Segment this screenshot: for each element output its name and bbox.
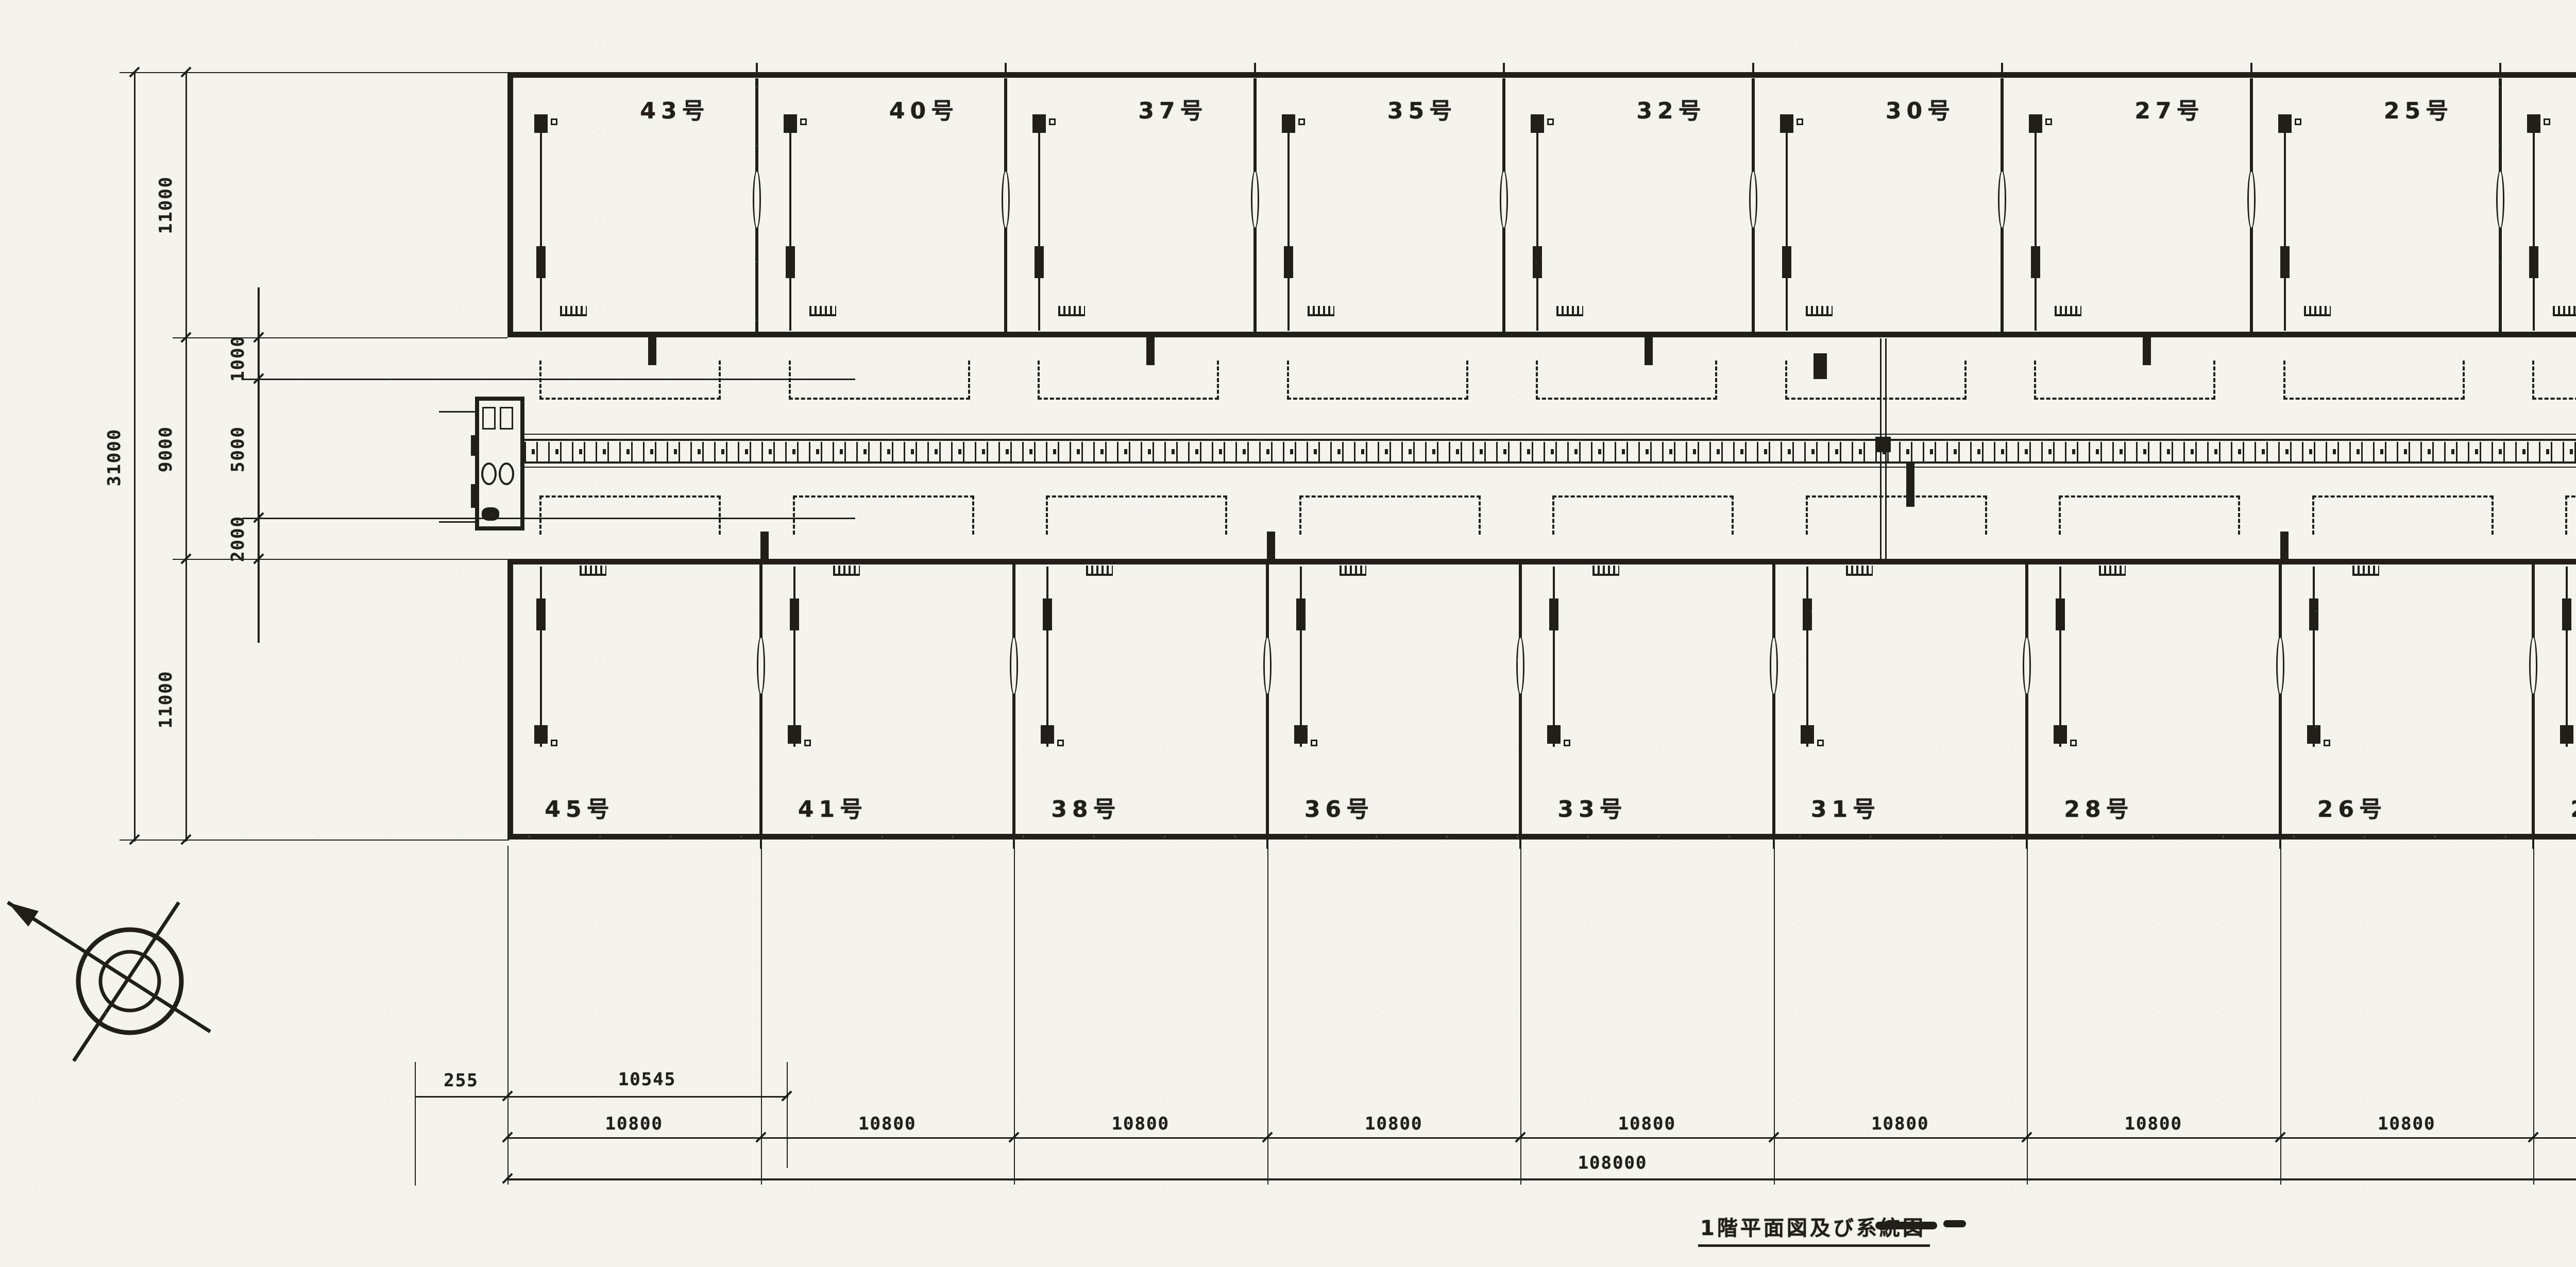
wall-tick	[2250, 63, 2252, 72]
meter-valve-symbol	[1797, 118, 1803, 125]
service-pipe-line	[2533, 132, 2535, 331]
door-blob	[471, 484, 477, 508]
corridor-wall-line	[524, 439, 2576, 441]
vent-hatch-mark	[1846, 566, 1873, 576]
parking-bay-dashed	[2283, 361, 2465, 400]
pipe-fitting-symbol	[2280, 246, 2290, 278]
pipe-fitting-symbol	[1782, 246, 1791, 278]
gas-meter-symbol	[784, 114, 797, 133]
gas-meter-symbol	[2054, 725, 2067, 744]
party-wall-line	[1772, 564, 1775, 834]
pipe-fitting-symbol	[2056, 598, 2065, 630]
meter-valve-symbol	[1817, 740, 1824, 746]
wall-pilaster-symbol	[2496, 170, 2504, 229]
parking-bay-dashed	[789, 361, 970, 400]
party-wall-line	[1519, 564, 1522, 834]
grid-extension-line	[1267, 846, 1268, 1185]
extension-line	[173, 337, 507, 338]
dim-line-inner	[258, 287, 260, 643]
dim-label-2000: 2000	[228, 482, 248, 595]
unit-number-label: 33号	[1536, 794, 1649, 820]
unit-number-label: 25号	[2362, 96, 2476, 122]
wall-pilaster-symbol	[2247, 170, 2256, 229]
dim-label-11000: 11000	[156, 643, 176, 756]
parking-bay-dashed	[1046, 495, 1227, 535]
unit-number-label: 28号	[2042, 794, 2156, 820]
parking-bay-dashed	[1806, 495, 1987, 535]
service-pipe-line	[2284, 132, 2286, 331]
dim-label-10800: 10800	[578, 1114, 691, 1134]
party-wall-line	[1266, 564, 1269, 834]
meter-valve-symbol	[551, 740, 557, 746]
party-wall-line	[2532, 564, 2535, 834]
downspout-stub	[760, 532, 769, 559]
service-stub-line	[439, 411, 475, 413]
meter-valve-symbol	[551, 118, 557, 125]
service-pipe-line	[1553, 567, 1555, 747]
gas-meter-symbol	[534, 725, 548, 744]
extension-line	[120, 840, 509, 841]
grid-extension-line	[1520, 846, 1521, 1185]
corridor-wall-line	[524, 461, 2576, 464]
gas-meter-symbol	[534, 114, 548, 133]
grid-extension-line	[507, 846, 509, 1185]
dim-label-10800: 10800	[1337, 1114, 1450, 1134]
wall-pilaster-symbol	[2023, 636, 2031, 695]
parking-bay-dashed	[2532, 361, 2576, 400]
vent-hatch-mark	[1592, 566, 1619, 576]
vent-hatch-mark	[2099, 566, 2126, 576]
parking-bay-dashed	[793, 495, 974, 535]
service-pipe-line	[789, 132, 791, 331]
gas-meter-symbol	[2029, 114, 2042, 133]
gas-meter-symbol	[2527, 114, 2540, 133]
dim-label-10800: 10800	[2350, 1114, 2463, 1134]
gas-meter-symbol	[1780, 114, 1793, 133]
pipe-fitting-symbol	[536, 246, 546, 278]
pipe-fitting-symbol	[536, 598, 546, 630]
parking-bay-dashed	[2034, 361, 2215, 400]
meter-valve-symbol	[804, 740, 811, 746]
meter-valve-symbol	[1298, 118, 1305, 125]
unit-number-label: 27号	[2113, 96, 2226, 122]
extension-line	[242, 379, 855, 380]
pipe-fitting-symbol	[1296, 598, 1306, 630]
gas-meter-symbol	[1801, 725, 1814, 744]
wall-pilaster-symbol	[1770, 636, 1778, 695]
service-pipe-line	[2313, 567, 2315, 747]
service-pipe-line	[1046, 567, 1048, 747]
gas-meter-symbol	[2278, 114, 2292, 133]
toilet-fixture	[481, 463, 497, 485]
service-pipe-line	[2035, 132, 2037, 331]
pipe-fitting-symbol	[1035, 246, 1044, 278]
pipe-fitting-symbol	[2309, 598, 2318, 630]
north-arrow-icon	[0, 834, 258, 1123]
wall-pilaster-symbol	[1263, 636, 1272, 695]
wall-pilaster-symbol	[1998, 170, 2006, 229]
wall-tick	[756, 63, 758, 72]
meter-valve-symbol	[800, 118, 807, 125]
pipe-fitting-symbol	[2562, 598, 2571, 630]
unit-number-label: 37号	[1116, 96, 1230, 122]
gas-meter-symbol	[1547, 725, 1561, 744]
wall-tick	[1752, 63, 1754, 72]
vent-hatch-mark	[1340, 566, 1366, 576]
extension-line	[173, 559, 507, 560]
grid-extension-line	[1774, 846, 1775, 1185]
pipe-fitting-symbol	[2529, 246, 2538, 278]
wall-tick	[1503, 63, 1505, 72]
wall-tick	[1005, 63, 1007, 72]
wall-tick	[2499, 63, 2501, 72]
scale-note-smudge	[1875, 1222, 1937, 1229]
vent-hatch-mark	[560, 306, 587, 316]
unit-number-label: 30号	[1864, 96, 1977, 122]
corridor-edge-line	[524, 467, 2576, 468]
parking-bay-dashed	[1038, 361, 1219, 400]
meter-valve-symbol	[2295, 118, 2301, 125]
fixture-stall	[500, 407, 513, 430]
vent-hatch-mark	[1086, 566, 1113, 576]
service-pipe-line	[1287, 132, 1290, 331]
dim-label-10800: 10800	[2097, 1114, 2210, 1134]
meter-valve-symbol	[2324, 740, 2330, 746]
toilet-fixture	[499, 463, 514, 485]
dim-label-10800: 10800	[1843, 1114, 1957, 1134]
meter-valve-symbol	[2544, 118, 2550, 125]
service-pipe-line	[2566, 567, 2568, 747]
vent-hatch-mark	[809, 306, 836, 316]
grid-extension-line	[2533, 846, 2534, 1185]
extension-line	[242, 518, 855, 519]
wall-pilaster-symbol	[1010, 636, 1018, 695]
downspout-stub	[1146, 337, 1155, 365]
parking-bay-dashed	[2059, 495, 2240, 535]
parking-bay-dashed	[539, 495, 721, 535]
meter-valve-symbol	[2070, 740, 2077, 746]
pipe-fitting-symbol	[2031, 246, 2040, 278]
parking-bay-dashed	[2312, 495, 2494, 535]
party-wall-line	[2025, 564, 2028, 834]
vent-hatch-mark	[2352, 566, 2379, 576]
scale-note-smudge	[1943, 1220, 1966, 1227]
vent-hatch-mark	[2055, 306, 2081, 316]
vent-hatch-mark	[580, 566, 606, 576]
unit-number-label: 38号	[1029, 794, 1143, 820]
service-pipe-line	[540, 567, 542, 747]
dim-line-tier2	[507, 1137, 2576, 1139]
party-wall-line	[2279, 564, 2282, 834]
dim-line-tier3	[507, 1178, 2576, 1180]
meter-valve-symbol	[1564, 740, 1570, 746]
vent-hatch-mark	[1556, 306, 1583, 316]
pipe-fitting-symbol	[1284, 246, 1293, 278]
vent-hatch-mark	[1308, 306, 1334, 316]
wall-tick	[1254, 63, 1256, 72]
downspout-stub	[1267, 532, 1275, 559]
service-pipe-line	[2059, 567, 2061, 747]
pipe-fitting-symbol	[1803, 598, 1812, 630]
vent-hatch-mark	[1058, 306, 1085, 316]
door-blob	[471, 435, 477, 456]
gas-meter-symbol	[1032, 114, 1046, 133]
wall-pilaster-symbol	[2276, 636, 2284, 695]
unit-number-label: 41号	[776, 794, 890, 820]
downspout-stub	[2143, 337, 2151, 365]
downspout-stub	[648, 337, 656, 365]
vent-hatch-mark	[2553, 306, 2576, 316]
service-pipe-line	[1536, 132, 1538, 331]
floor-plan-canvas: 1階平面図及び系統図 43号40号37号35号32号30号27号25号22号20…	[0, 0, 2576, 1267]
dim-label-31000: 31000	[104, 401, 125, 514]
meter-valve-symbol	[1311, 740, 1317, 746]
gas-meter-symbol	[2307, 725, 2320, 744]
dim-label-10800: 10800	[1590, 1114, 1704, 1134]
meter-valve-symbol	[1547, 118, 1554, 125]
pipe-fitting-symbol	[786, 246, 795, 278]
dim-line-tier1	[415, 1096, 788, 1098]
corridor-edge-line	[524, 434, 2576, 435]
party-wall-line	[759, 564, 762, 834]
gas-meter-symbol	[788, 725, 801, 744]
gas-meter-symbol	[1531, 114, 1544, 133]
wall-pilaster-symbol	[1251, 170, 1259, 229]
upper-building-outline	[507, 72, 2576, 337]
fixture-stall	[482, 407, 496, 430]
dim-line-chain	[185, 71, 187, 842]
vent-hatch-mark	[833, 566, 860, 576]
dim-label-108000: 108000	[1556, 1153, 1669, 1173]
pipe-fitting-symbol	[1043, 598, 1052, 630]
unit-number-label: 45号	[523, 794, 636, 820]
service-pipe-line	[540, 132, 542, 331]
wall-pilaster-symbol	[753, 170, 761, 229]
meter-valve-symbol	[2045, 118, 2052, 125]
grid-extension-line	[2280, 846, 2281, 1185]
meter-valve-symbol	[1057, 740, 1064, 746]
drawing-title-text: 1階平面図及び系統図	[1698, 1217, 1930, 1247]
unit-number-label: 43号	[618, 96, 732, 122]
unit-number-label: 31号	[1789, 794, 1903, 820]
service-stub-line	[439, 521, 475, 523]
wall-tick	[2001, 63, 2003, 72]
parking-bay-dashed	[1785, 361, 1967, 400]
corridor-pipe-dots	[524, 449, 2576, 454]
parking-bay-dashed	[2565, 495, 2576, 535]
dim-label-10800: 10800	[1084, 1114, 1197, 1134]
gas-meter-symbol	[1294, 725, 1308, 744]
unit-number-label: 35号	[1366, 96, 1479, 122]
grid-extension-line	[1014, 846, 1015, 1185]
parking-bay-dashed	[1299, 495, 1481, 535]
dim-label-10800: 10800	[831, 1114, 944, 1134]
grid-extension-line	[761, 846, 762, 1185]
service-pipe-line	[1300, 567, 1302, 747]
dim-label-11000: 11000	[156, 148, 176, 262]
wall-pilaster-symbol	[1516, 636, 1524, 695]
gas-meter-symbol	[2560, 725, 2573, 744]
wall-pilaster-symbol	[757, 636, 765, 695]
pipe-fitting-symbol	[1549, 598, 1558, 630]
dim-label-255: 255	[404, 1070, 518, 1091]
pipe-fitting-symbol	[790, 598, 799, 630]
unit-number-label: 23号	[2549, 794, 2576, 820]
gas-meter-symbol	[1041, 725, 1054, 744]
extension-line	[120, 72, 509, 73]
dim-end-tick	[787, 1062, 788, 1168]
unit-number-label: 40号	[868, 96, 981, 122]
wall-pilaster-symbol	[2529, 636, 2537, 695]
service-pipe-line	[1806, 567, 1808, 747]
pipe-fitting-symbol	[1533, 246, 1542, 278]
unit-number-label: 32号	[1615, 96, 1728, 122]
service-pipe-line	[793, 567, 795, 747]
dim-line-overall	[134, 71, 135, 842]
unit-number-label: 36号	[1283, 794, 1396, 820]
junction-box-symbol	[1875, 437, 1891, 452]
grid-extension-line	[2027, 846, 2028, 1185]
service-pipe-line	[1786, 132, 1788, 331]
service-pipe-line	[1038, 132, 1040, 331]
gas-meter-symbol	[1282, 114, 1295, 133]
wall-pilaster-symbol	[1002, 170, 1010, 229]
unit-number-label: 26号	[2296, 794, 2409, 820]
meter-valve-symbol	[1049, 118, 1056, 125]
dim-label-9000: 9000	[156, 392, 176, 506]
vent-hatch-mark	[1806, 306, 1833, 316]
wall-pilaster-symbol	[1749, 170, 1757, 229]
parking-bay-dashed	[539, 361, 721, 400]
parking-bay-dashed	[1287, 361, 1468, 400]
party-wall-line	[1012, 564, 1015, 834]
downspout-stub	[1645, 337, 1653, 365]
dim-label-10545: 10545	[590, 1069, 704, 1090]
parking-bay-dashed	[1536, 361, 1717, 400]
vent-hatch-mark	[2304, 306, 2331, 316]
downspout-stub	[2280, 532, 2289, 559]
wall-pilaster-symbol	[1500, 170, 1508, 229]
parking-bay-dashed	[1552, 495, 1734, 535]
